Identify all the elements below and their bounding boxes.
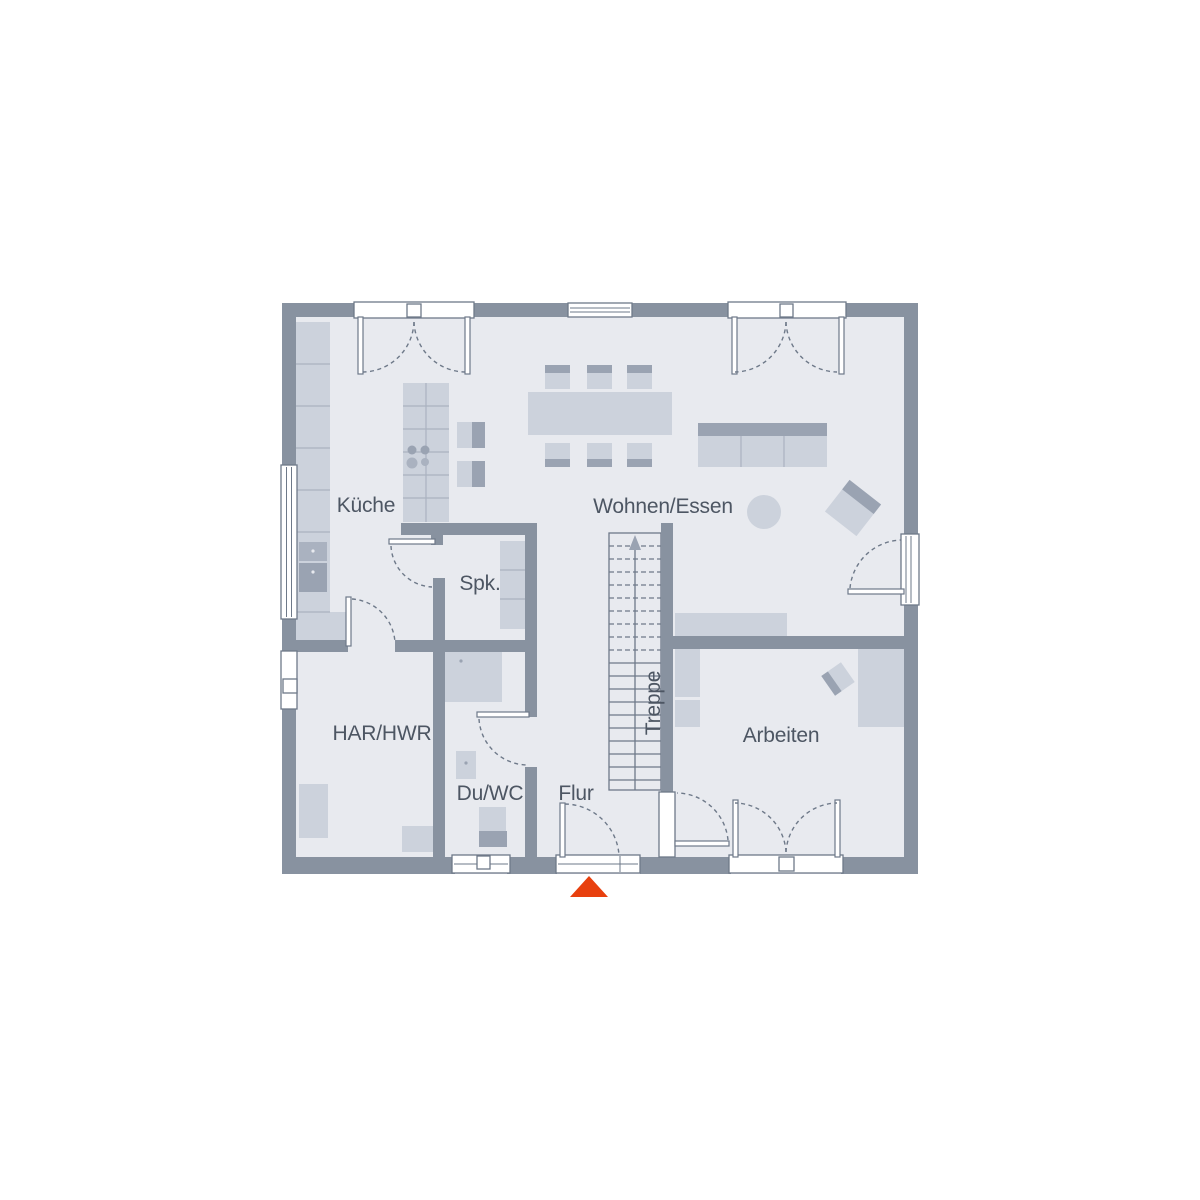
room-label-kueche: Küche — [337, 494, 396, 517]
dining-furniture — [528, 365, 672, 467]
room-label-flur: Flur — [558, 782, 594, 805]
wall-stair-right — [661, 523, 673, 792]
cooktop-burner — [407, 458, 418, 469]
shower-drain-dot — [459, 659, 462, 662]
window-left-tall — [281, 465, 297, 619]
wall-bath-right-lower — [525, 767, 537, 857]
room-label-treppe: Treppe — [642, 671, 665, 736]
cooktop-burner — [421, 446, 430, 455]
window-left-utility-handle — [283, 679, 297, 693]
dining-chairs-top — [545, 365, 652, 389]
toilet-tank — [479, 807, 506, 832]
wall-living-office — [661, 636, 904, 649]
utility-appliance — [402, 826, 433, 852]
room-label-wohnen-essen: Wohnen/Essen — [593, 495, 733, 518]
french-door-office-center — [779, 857, 794, 871]
kitchen-side-table-edge — [472, 461, 485, 487]
kitchen-side-table-edge — [472, 422, 485, 448]
sideboard — [675, 613, 787, 637]
desk — [858, 643, 904, 727]
bathroom-sink — [456, 751, 476, 779]
office-shelf — [675, 643, 700, 697]
wall-pantry-bath-left — [433, 578, 445, 857]
room-label-spk: Spk. — [459, 572, 500, 595]
french-door-kitchen-center — [407, 304, 421, 317]
window-bottom-bath-handle — [477, 856, 490, 869]
wall-kitchen-utility-right — [395, 640, 537, 652]
room-label-arbeiten: Arbeiten — [743, 724, 820, 747]
french-door-living-center — [780, 304, 793, 317]
sink-dot — [464, 761, 467, 764]
floorplan-svg: Küche Wohnen/Essen Spk. HAR/HWR Du/WC Fl… — [0, 0, 1200, 1200]
toilet-seat — [479, 831, 507, 847]
wall-pantry-top — [401, 523, 537, 535]
shower — [445, 648, 502, 702]
room-label-har-hwr: HAR/HWR — [333, 722, 432, 745]
sink-dot — [311, 549, 314, 552]
appliance-dot — [311, 570, 314, 573]
dining-table — [528, 392, 672, 435]
office-entry-frame — [659, 792, 675, 857]
window-top — [568, 303, 632, 317]
kitchen-appliance — [299, 563, 327, 592]
sofa-back — [698, 423, 827, 436]
room-label-du-wc: Du/WC — [457, 782, 524, 805]
cooktop-burner — [421, 458, 429, 466]
entrance-door-leaf — [560, 803, 565, 857]
cooktop-burner — [408, 446, 417, 455]
office-shelf — [675, 700, 700, 727]
utility-appliance — [299, 784, 328, 838]
sofa-seat — [698, 436, 827, 467]
floorplan-page: Küche Wohnen/Essen Spk. HAR/HWR Du/WC Fl… — [0, 0, 1200, 1200]
kitchen-counter — [296, 322, 330, 640]
entrance-arrow-icon — [570, 876, 608, 897]
coffee-table — [747, 495, 781, 529]
pantry-furniture — [500, 541, 527, 629]
pantry-shelf — [500, 541, 527, 629]
wall-pantry-bath-right-upper — [525, 523, 537, 717]
kitchen-counter-corner — [330, 612, 347, 640]
dining-chairs-bottom — [545, 443, 652, 467]
wall-kitchen-utility-left — [296, 640, 348, 652]
